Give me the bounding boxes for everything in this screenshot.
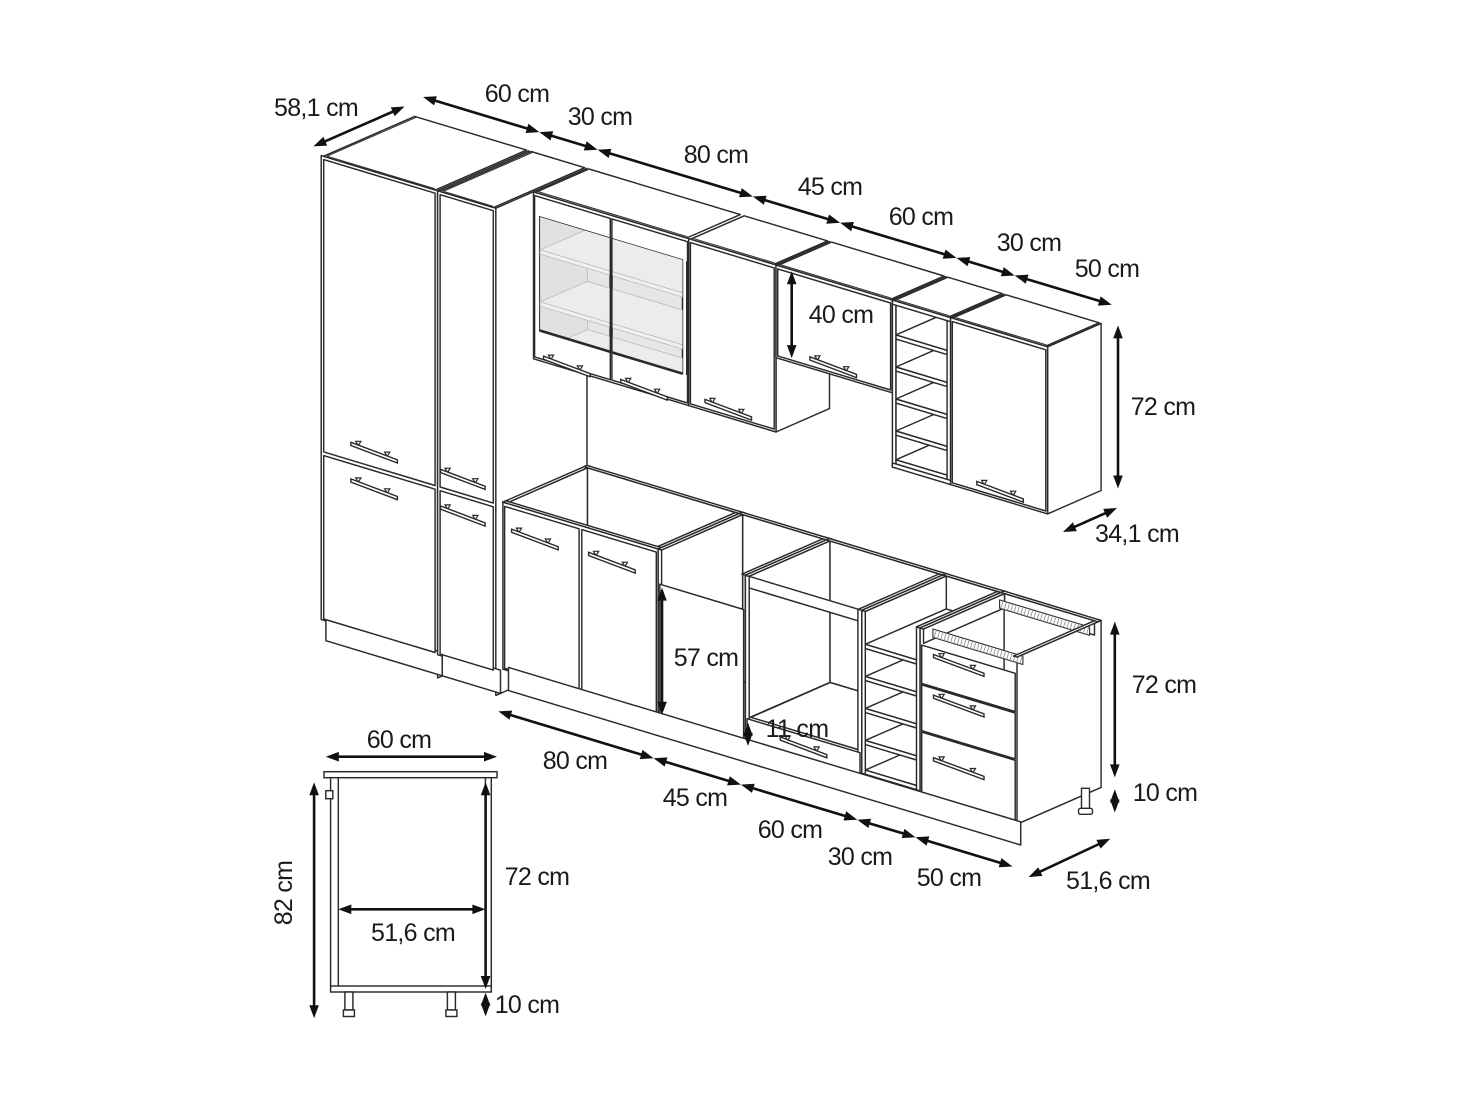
svg-text:82 cm: 82 cm bbox=[270, 861, 298, 926]
svg-text:80 cm: 80 cm bbox=[543, 747, 608, 775]
svg-text:72 cm: 72 cm bbox=[1131, 393, 1196, 421]
svg-text:60 cm: 60 cm bbox=[758, 816, 823, 844]
svg-text:30 cm: 30 cm bbox=[828, 843, 893, 871]
svg-text:10 cm: 10 cm bbox=[1133, 779, 1198, 807]
svg-text:57 cm: 57 cm bbox=[674, 644, 739, 672]
svg-text:45 cm: 45 cm bbox=[663, 784, 728, 812]
svg-text:30 cm: 30 cm bbox=[997, 229, 1062, 257]
svg-text:51,6 cm: 51,6 cm bbox=[371, 919, 455, 947]
svg-text:60 cm: 60 cm bbox=[367, 726, 432, 754]
svg-text:10 cm: 10 cm bbox=[495, 991, 560, 1019]
svg-text:40 cm: 40 cm bbox=[809, 301, 874, 329]
svg-text:72 cm: 72 cm bbox=[505, 863, 570, 891]
svg-text:80 cm: 80 cm bbox=[684, 141, 749, 169]
svg-text:58,1 cm: 58,1 cm bbox=[274, 94, 358, 122]
svg-text:60 cm: 60 cm bbox=[889, 203, 954, 231]
svg-text:50 cm: 50 cm bbox=[917, 864, 982, 892]
svg-text:11 cm: 11 cm bbox=[766, 715, 829, 743]
svg-text:30 cm: 30 cm bbox=[568, 103, 633, 131]
svg-text:45 cm: 45 cm bbox=[798, 173, 863, 201]
svg-text:50 cm: 50 cm bbox=[1075, 255, 1140, 283]
svg-text:60 cm: 60 cm bbox=[485, 80, 550, 108]
svg-text:34,1 cm: 34,1 cm bbox=[1095, 520, 1179, 548]
svg-text:72 cm: 72 cm bbox=[1132, 671, 1197, 699]
svg-text:51,6 cm: 51,6 cm bbox=[1066, 867, 1150, 895]
